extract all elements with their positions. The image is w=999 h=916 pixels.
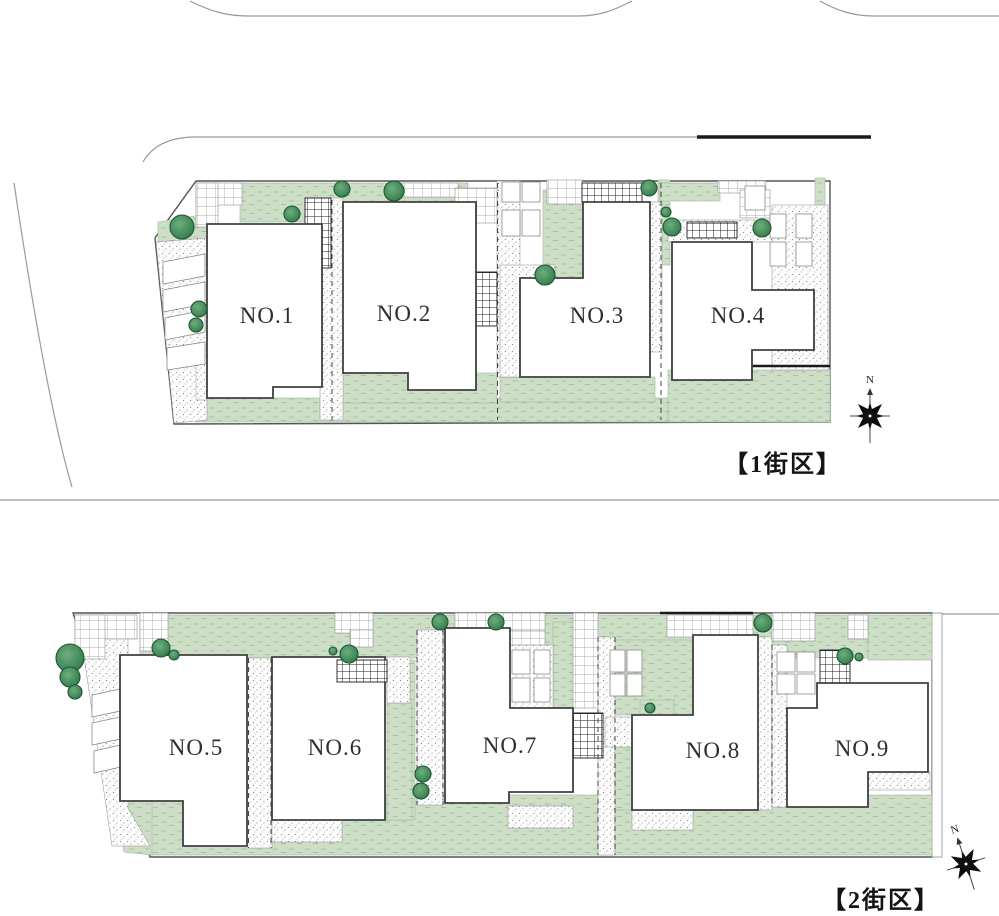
lot-label-no3: NO.3 bbox=[570, 303, 624, 328]
block-1-label: 【1街区】 bbox=[724, 450, 842, 478]
block-2-label: 【2街区】 bbox=[822, 886, 940, 914]
lot-label-no6: NO.6 bbox=[308, 735, 362, 760]
compass-icon: N bbox=[846, 374, 894, 443]
tree-icon bbox=[189, 318, 203, 332]
tree-icon bbox=[753, 219, 771, 237]
tree-icon bbox=[645, 703, 655, 713]
compass-north-label: N bbox=[866, 374, 874, 386]
tree-icon bbox=[432, 614, 448, 630]
tree-icon bbox=[384, 181, 404, 201]
tree-icon bbox=[329, 647, 337, 655]
entrance-tiles-no6 bbox=[337, 660, 387, 682]
block-1: NO.1 NO.2 NO.3 NO.4 【1街区】 N bbox=[155, 178, 894, 478]
site-plan-canvas: NO.1 NO.2 NO.3 NO.4 【1街区】 N bbox=[0, 0, 999, 916]
tree-icon bbox=[488, 614, 504, 630]
tree-icon bbox=[641, 180, 657, 196]
tree-icon bbox=[661, 207, 671, 217]
tree-icon bbox=[754, 614, 772, 632]
road-line-top-right bbox=[820, 1, 999, 16]
road-line-left bbox=[14, 183, 72, 487]
lot-label-no2: NO.2 bbox=[377, 301, 431, 326]
tree-icon bbox=[191, 301, 207, 317]
block-2: NO.5 NO.6 NO.7 NO.8 NO.9 【2街区】 N bbox=[56, 613, 997, 914]
tree-icon bbox=[170, 215, 194, 239]
tree-icon bbox=[855, 653, 863, 661]
lot-label-no7: NO.7 bbox=[483, 733, 537, 758]
tree-icon bbox=[284, 206, 300, 222]
north-arrow-icon bbox=[954, 836, 962, 845]
tree-icon bbox=[334, 181, 350, 197]
tree-icon bbox=[340, 645, 358, 663]
lot-label-no4: NO.4 bbox=[711, 303, 765, 328]
tree-icon bbox=[68, 685, 82, 699]
tree-icon bbox=[663, 218, 681, 236]
road-line-upper bbox=[143, 137, 697, 162]
lot-label-no1: NO.1 bbox=[240, 303, 294, 328]
tree-icon bbox=[169, 650, 179, 660]
site-plan-drawing: NO.1 NO.2 NO.3 NO.4 【1街区】 N bbox=[0, 0, 999, 916]
block-2-boundary-wall bbox=[932, 613, 942, 857]
lot-label-no5: NO.5 bbox=[169, 735, 223, 760]
tree-icon bbox=[415, 766, 431, 782]
road-line-top-left bbox=[190, 1, 632, 16]
lot-label-no9: NO.9 bbox=[835, 736, 889, 761]
tree-icon bbox=[152, 639, 170, 657]
compass-north-label: N bbox=[949, 823, 960, 837]
house-no2 bbox=[343, 202, 476, 390]
tree-icon bbox=[837, 648, 853, 664]
north-arrow-icon bbox=[867, 388, 873, 395]
tree-icon bbox=[413, 783, 429, 799]
tree-icon bbox=[535, 265, 555, 285]
lot-label-no8: NO.8 bbox=[686, 738, 740, 763]
tree-icon bbox=[60, 667, 80, 687]
